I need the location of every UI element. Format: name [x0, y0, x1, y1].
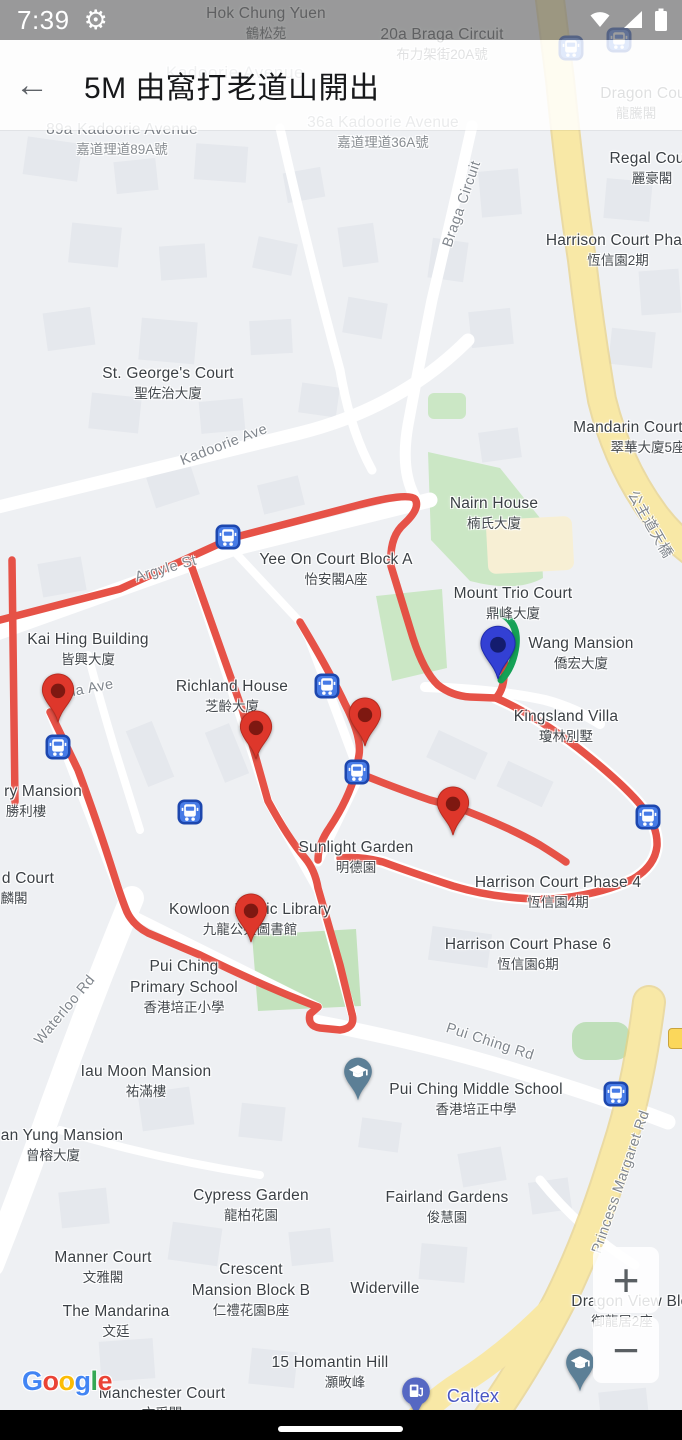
- school-poi-icon[interactable]: [341, 1055, 375, 1107]
- bus-stop-icon[interactable]: [216, 525, 241, 550]
- bus-stop-icon[interactable]: [345, 760, 370, 785]
- google-logo-letter: g: [75, 1366, 91, 1396]
- app-screen: Hok Chung Yuen鶴松苑20a Braga Circuit布力架街20…: [0, 0, 682, 1440]
- gesture-bar[interactable]: [278, 1426, 403, 1432]
- zoom-out-button[interactable]: −: [593, 1317, 659, 1383]
- google-logo-letter: l: [91, 1366, 98, 1396]
- current-stop-marker[interactable]: [477, 623, 519, 686]
- status-bar: 7:39 ⚙: [0, 0, 682, 40]
- google-logo-letter: o: [43, 1366, 59, 1396]
- navigation-bar: [0, 1410, 682, 1440]
- clock: 7:39: [17, 5, 70, 36]
- status-icons: [588, 7, 668, 33]
- bus-stop-icon[interactable]: [46, 735, 71, 760]
- minus-icon: −: [593, 1317, 659, 1383]
- battery-icon: [654, 7, 668, 33]
- google-logo-letter: o: [59, 1366, 75, 1396]
- page-title: 5M 由窩打老道山開出: [84, 63, 380, 107]
- red-stop-marker[interactable]: [346, 695, 384, 753]
- red-stop-marker[interactable]: [237, 708, 275, 766]
- google-logo: Google: [22, 1366, 112, 1397]
- signal-icon: [621, 8, 645, 32]
- google-logo-letter: e: [98, 1366, 113, 1396]
- bus-stop-icon[interactable]: [315, 674, 340, 699]
- map-canvas[interactable]: [0, 0, 682, 1440]
- bus-stop-icon[interactable]: [636, 805, 661, 830]
- school-poi-icon[interactable]: [563, 1346, 597, 1398]
- bus-stop-icon[interactable]: [178, 800, 203, 825]
- google-logo-letter: G: [22, 1366, 43, 1396]
- red-stop-marker[interactable]: [39, 671, 77, 729]
- route-shield-icon: [668, 1028, 682, 1049]
- zoom-in-button[interactable]: +: [593, 1247, 659, 1313]
- bus-stop-icon[interactable]: [604, 1082, 629, 1107]
- wifi-icon: [588, 8, 612, 32]
- back-button[interactable]: ←: [0, 40, 64, 130]
- gear-icon: ⚙: [84, 0, 108, 40]
- red-stop-marker[interactable]: [434, 784, 472, 842]
- plus-icon: +: [593, 1247, 659, 1313]
- red-stop-marker[interactable]: [232, 891, 270, 949]
- app-header: ← 5M 由窩打老道山開出: [0, 40, 682, 130]
